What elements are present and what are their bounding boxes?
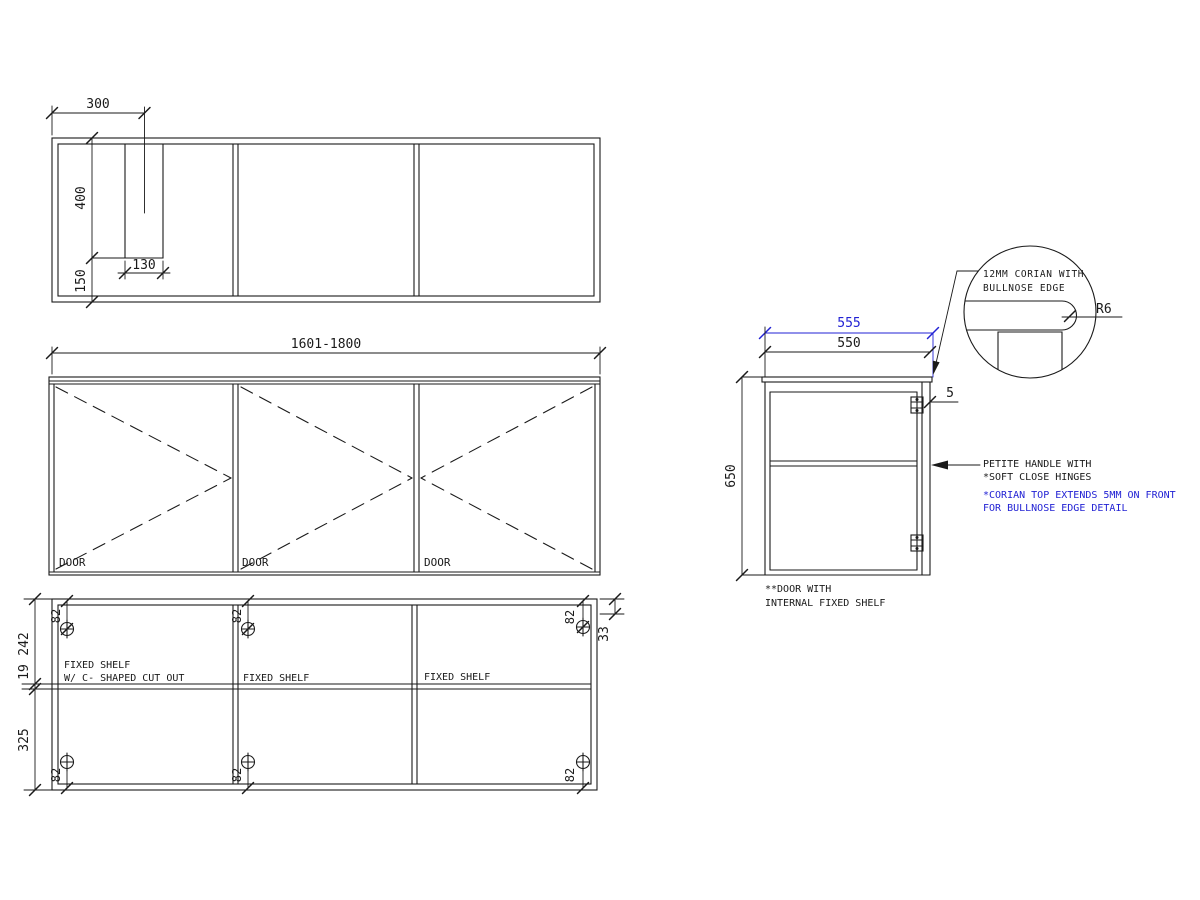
cabinet-drawing: 300 400 150 130: [0, 0, 1200, 900]
detail-leader: [934, 271, 978, 372]
hinge-dim-text: 82: [230, 609, 244, 623]
dim-550: 550: [760, 327, 936, 377]
corian-note-line2: FOR BULLNOSE EDGE DETAIL: [983, 503, 1128, 514]
cutout-outline: [125, 144, 163, 258]
dim-width-range: 1601-1800: [47, 337, 606, 374]
detail-callout-line2: BULLNOSE EDGE: [983, 283, 1065, 294]
door-note-line2: INTERNAL FIXED SHELF: [765, 598, 885, 609]
shelf-3-label: FIXED SHELF: [424, 672, 490, 683]
dim-33: 33: [597, 594, 624, 642]
detail-geometry: [958, 301, 1077, 380]
detail-callout-line1: 12MM CORIAN WITH: [983, 269, 1084, 280]
internal-elevation-view: FIXED SHELF W/ C- SHAPED CUT OUT FIXED S…: [17, 594, 624, 796]
dim-150-text: 150: [74, 269, 89, 292]
handle-note-line1: PETITE HANDLE WITH: [983, 459, 1091, 470]
dim-33-text: 33: [597, 626, 612, 642]
radius-dim: R6: [1062, 302, 1122, 322]
shelf-2-label: FIXED SHELF: [243, 673, 309, 684]
door-swing-lines: [56, 387, 592, 569]
dim-650-text: 650: [724, 464, 739, 487]
dim-325-text: 325: [17, 728, 32, 751]
dim-130: 130: [118, 258, 170, 279]
plan-outline: [52, 138, 600, 302]
detail-circle: 12MM CORIAN WITH BULLNOSE EDGE R6: [933, 246, 1122, 380]
door-label-3: DOOR: [424, 556, 451, 569]
carcass-inner-outline: [58, 605, 591, 784]
bullnose-profile: [958, 301, 1077, 330]
handle-note: PETITE HANDLE WITH *SOFT CLOSE HINGES *C…: [931, 459, 1176, 514]
top-plan-view: 300 400 150 130: [47, 97, 601, 308]
dim-300: 300: [47, 97, 151, 135]
dim-19-text: 19: [17, 664, 32, 680]
hinge-dim-text: 82: [563, 768, 577, 782]
door-label-1: DOOR: [59, 556, 86, 569]
dim-400-text: 400: [74, 186, 89, 209]
hinge-dim-text: 82: [563, 610, 577, 624]
dim-650: 650: [724, 372, 765, 581]
dim-300-text: 300: [86, 97, 109, 112]
hinge-dim-text: 82: [49, 609, 63, 623]
dim-width-range-text: 1601-1800: [291, 337, 361, 352]
dim-550-text: 550: [837, 336, 860, 351]
carcass-outline: [52, 599, 597, 790]
leader-arrow-icon: [931, 461, 948, 470]
dim-150: 150: [74, 258, 98, 308]
dim-242-text: 242: [17, 632, 32, 655]
radius-text: R6: [1096, 302, 1112, 317]
corian-top: [762, 377, 932, 382]
shelf-1-label-line2: W/ C- SHAPED CUT OUT: [64, 673, 184, 684]
door-label-2: DOOR: [242, 556, 269, 569]
hinge-dims: 82 82 82 82 82 82: [49, 596, 589, 794]
handle-note-line2: *SOFT CLOSE HINGES: [983, 472, 1091, 483]
hinge-dim-text: 82: [49, 768, 63, 782]
shelf-1-label-line1: FIXED SHELF: [64, 660, 130, 671]
dim-400: 400: [74, 133, 125, 264]
elevation-outline: [49, 377, 600, 575]
hinge-dim-text: 82: [230, 768, 244, 782]
leader-arrow-icon: [933, 361, 940, 375]
dim-555-text: 555: [837, 316, 860, 331]
cad-sheet: 300 400 150 130: [0, 0, 1200, 900]
front-elevation-view: DOOR DOOR DOOR 1601-1800: [47, 337, 606, 575]
corian-note-line1: *CORIAN TOP EXTENDS 5MM ON FRONT: [983, 490, 1176, 501]
door-note-line1: **DOOR WITH: [765, 584, 831, 595]
dim-130-text: 130: [132, 258, 155, 273]
dim-5-text: 5: [946, 386, 954, 401]
carcass-front-rail: [998, 332, 1062, 380]
side-section-view: 555 550 650 5 PETITE HANDLE WITH: [724, 316, 1176, 609]
